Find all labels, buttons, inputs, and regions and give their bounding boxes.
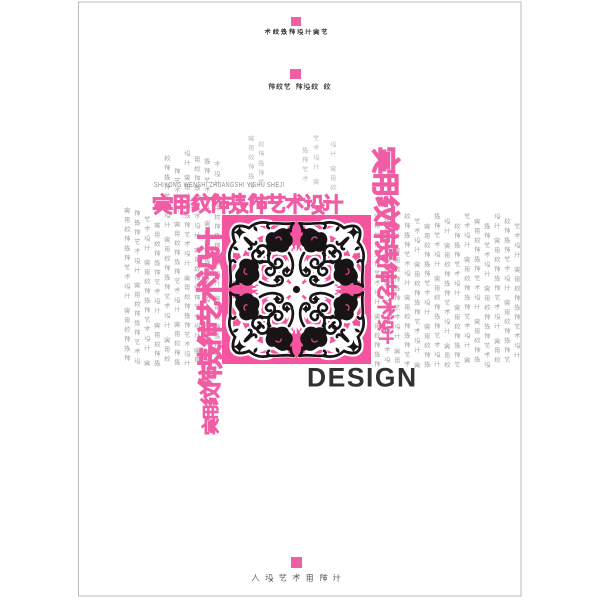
svg-text:DESIGN: DESIGN: [307, 363, 418, 393]
svg-text:SHIYONG WENSHI ZHUANGSHI YISHU: SHIYONG WENSHI ZHUANGSHI YISHU SHEJI: [154, 181, 284, 189]
